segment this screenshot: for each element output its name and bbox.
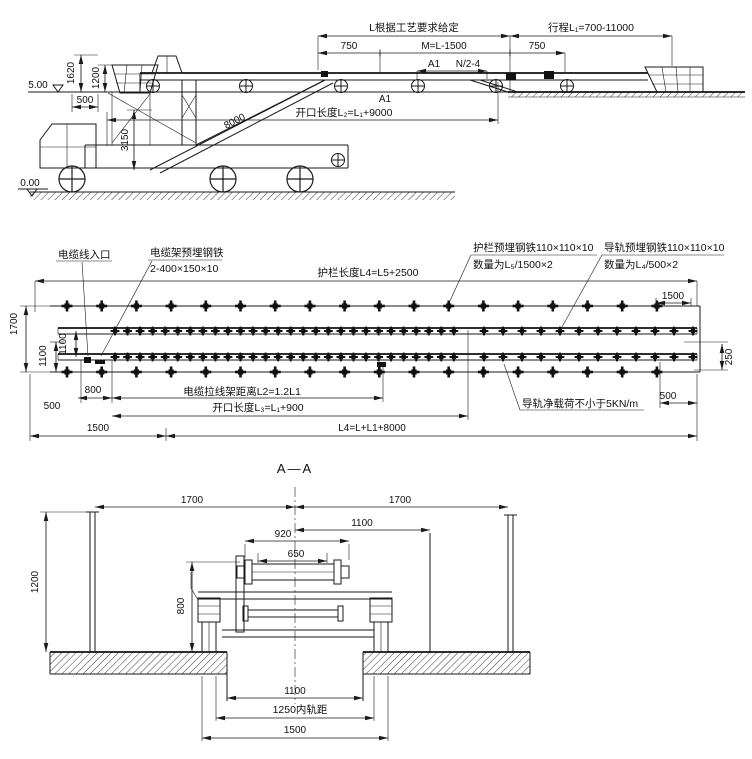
dim-label-1700-left: 1700 <box>181 495 204 506</box>
dim-label-N: N/2-4 <box>456 59 481 70</box>
engineering-drawing: L根据工艺要求给定 行程L₁=700-11000 750 M=L-1500 75… <box>0 0 752 759</box>
dim-label-L-note: L根据工艺要求给定 <box>369 21 459 34</box>
dim-label-800: 800 <box>176 597 187 614</box>
dim-label-920: 920 <box>275 529 292 540</box>
label-guardrail-steel-line1: 护栏预埋钢铁110×110×10 <box>473 241 594 254</box>
label-rail-steel-line2: 数量为L₄/500×2 <box>604 258 678 271</box>
dim-label-1620: 1620 <box>66 61 77 84</box>
dim-label-M: M=L-1500 <box>421 41 467 52</box>
rail-line-2 <box>58 353 697 362</box>
rail-line-1 <box>58 327 697 336</box>
drawing-sheet: L根据工艺要求给定 行程L₁=700-11000 750 M=L-1500 75… <box>0 0 752 759</box>
dim-label-opening-L2: 开口长度L₂=L₁+9000 <box>296 106 393 119</box>
dim-label-total-length: L4=L+L1+8000 <box>338 423 406 434</box>
dim-label-500-left: 500 <box>44 401 61 412</box>
trolley-wheel <box>490 80 503 93</box>
dim-label-750-left: 750 <box>341 41 358 52</box>
dim-label-1200-post: 1200 <box>30 570 41 593</box>
trolley-wheel <box>412 80 425 93</box>
dim-label-1700: 1700 <box>9 312 20 335</box>
bed-roller <box>332 154 345 167</box>
dim-label-1500: 1500 <box>284 725 307 736</box>
label-cable-entry: 电缆线入口 <box>58 248 111 261</box>
truck-wheel <box>59 166 85 192</box>
ground <box>30 192 455 200</box>
label-rail-steel-line1: 导轨预埋钢铁110×110×10 <box>604 241 725 254</box>
dim-label-1100-b: 1100 <box>38 345 49 367</box>
cable-stay-rack-mark <box>377 362 386 367</box>
dim-label-opening-L3: 开口长度L₃=L₁+900 <box>212 401 303 414</box>
dim-label-500: 500 <box>77 95 94 106</box>
dim-label-guardrail-length: 护栏长度L4=L5+2500 <box>318 266 419 279</box>
dim-label-gauge: 1250内轨距 <box>273 703 328 716</box>
trolley-wheel <box>561 80 574 93</box>
dim-label-1100-top: 1100 <box>351 518 373 529</box>
elevation-label-top: 5.00 <box>28 80 48 91</box>
dim-label-1500-top: 1500 <box>662 291 685 302</box>
dim-label-800: 800 <box>85 385 102 396</box>
dim-label-750-right: 750 <box>529 41 546 52</box>
dim-label-500-right: 500 <box>660 391 677 402</box>
dim-label-650: 650 <box>288 549 305 560</box>
trolley-wheel <box>240 80 253 93</box>
rail-platform <box>508 92 745 97</box>
truck-wheel <box>210 166 236 192</box>
label-guardrail-steel-line2: 数量为L₅/1500×2 <box>473 258 553 271</box>
dim-label-3150: 3150 <box>120 128 131 151</box>
trolley-wheel <box>335 80 348 93</box>
elevation-label-ground: 0.00 <box>20 178 40 189</box>
label-cable-rack-line2: 2-400×150×10 <box>150 263 218 275</box>
dim-label-250: 250 <box>724 348 735 365</box>
dim-label-stroke: 行程L₁=700-11000 <box>548 21 634 34</box>
trolley-clamp <box>544 71 554 79</box>
dim-label-1200: 1200 <box>91 66 102 89</box>
dim-label-1100-a: 1100 <box>58 333 69 355</box>
dim-label-1100-bottom: 1100 <box>284 686 306 697</box>
dim-label-1700-right: 1700 <box>389 495 412 506</box>
label-rail-load: 导轨净载荷不小于5KN/m <box>522 397 638 410</box>
section-title: A—A <box>277 461 313 476</box>
label-A1-bottom: A1 <box>379 94 392 105</box>
cable-rack-mark <box>95 360 105 364</box>
label-A1-top: A1 <box>428 59 441 70</box>
label-cable-rack-line1: 电缆架预埋钢铁 <box>150 246 224 259</box>
cable-entry-mark <box>84 357 91 363</box>
pivot-block <box>321 71 328 77</box>
truck-wheel <box>287 166 313 192</box>
dim-label-1500-left: 1500 <box>87 423 110 434</box>
support-block <box>506 73 516 80</box>
dim-label-cable-rack-distance: 电缆拉线架距离L2=1.2L1 <box>183 385 301 398</box>
